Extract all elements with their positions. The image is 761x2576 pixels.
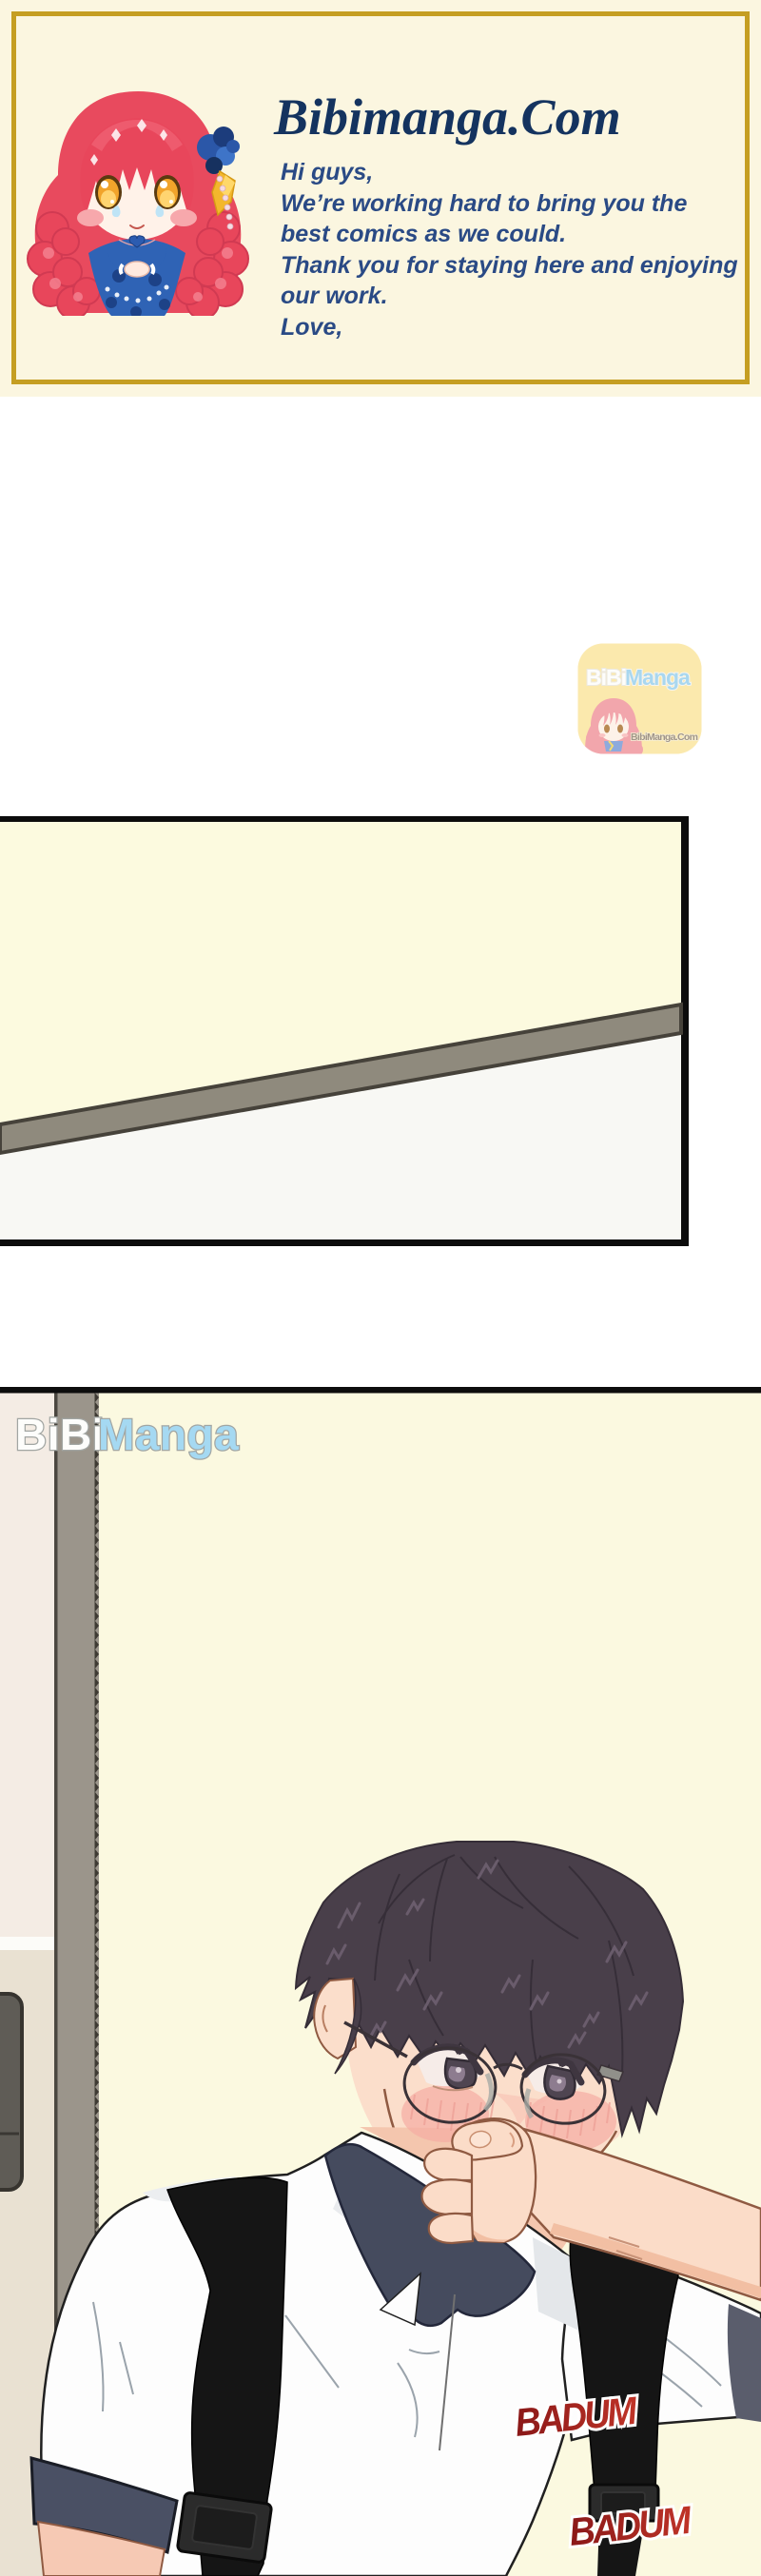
svg-text:BiBi: BiBi [15,1410,105,1459]
svg-text:Manga: Manga [98,1410,239,1459]
svg-text:BibiManga.Com: BibiManga.Com [631,732,698,743]
svg-text:Manga: Manga [625,665,691,690]
svg-text:BiBi: BiBi [586,665,626,690]
